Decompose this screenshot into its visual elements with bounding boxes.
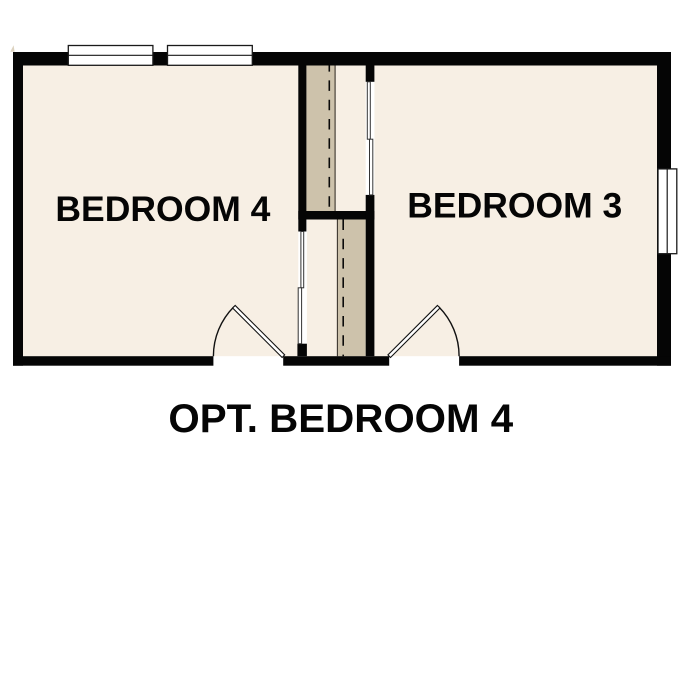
svg-text:BEDROOM 3: BEDROOM 3 bbox=[407, 185, 622, 225]
svg-text:OPT. BEDROOM 4: OPT. BEDROOM 4 bbox=[168, 396, 513, 441]
svg-text:BEDROOM 4: BEDROOM 4 bbox=[55, 189, 270, 229]
